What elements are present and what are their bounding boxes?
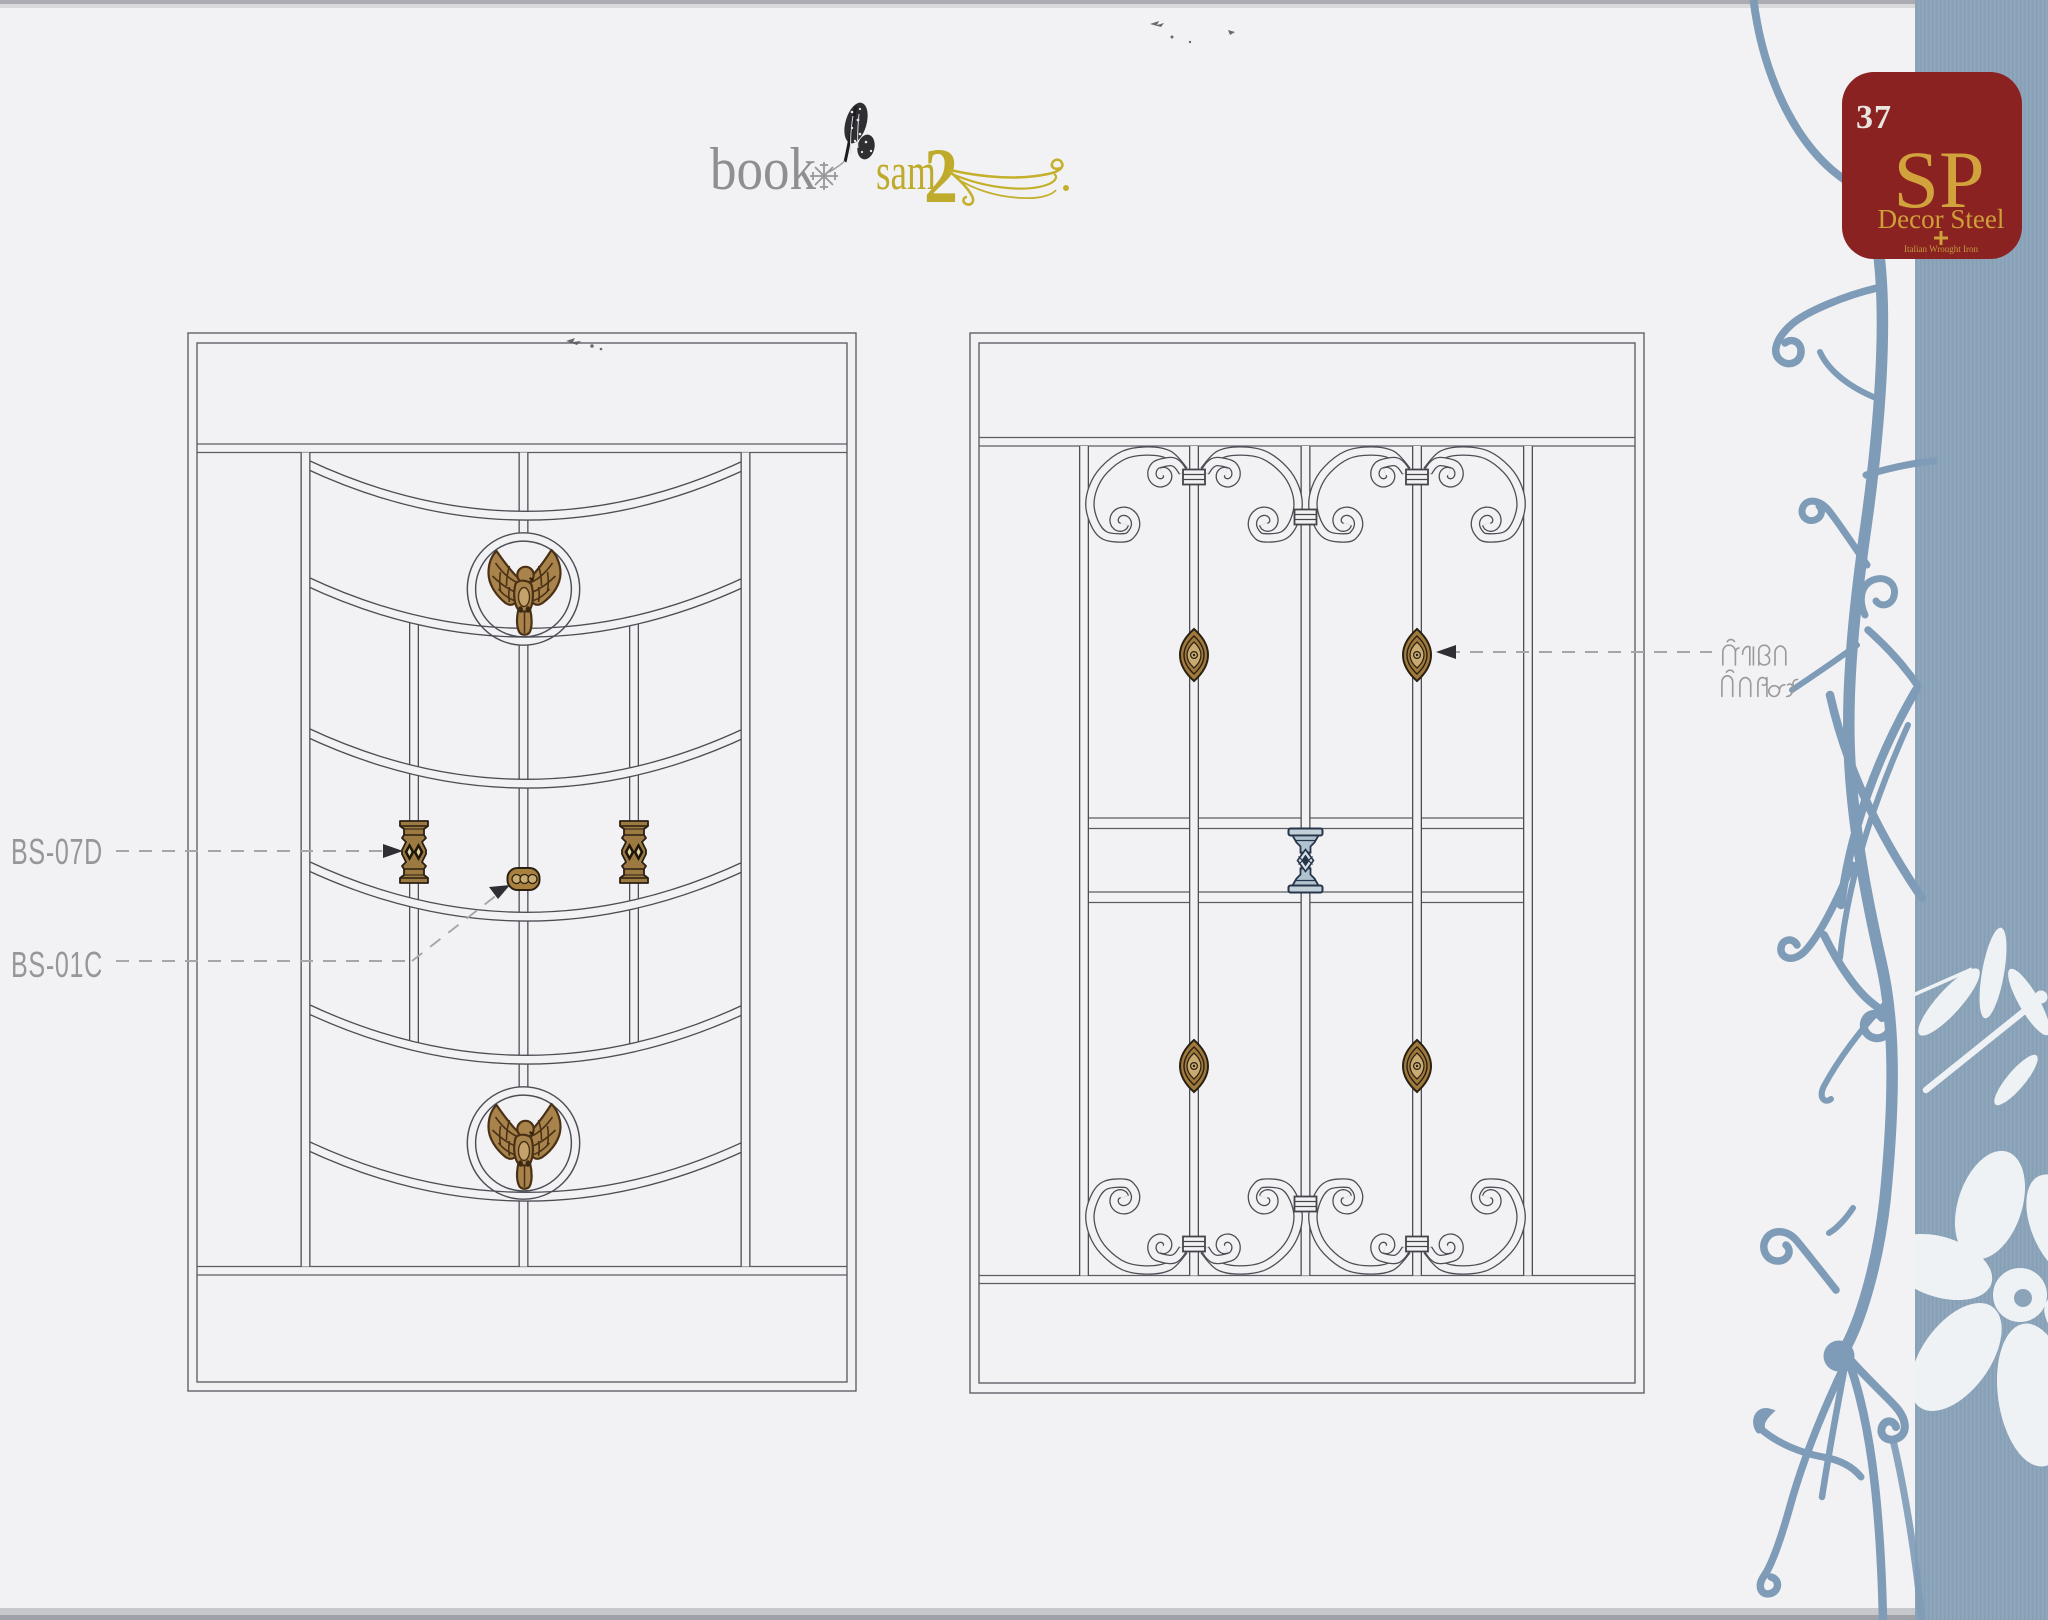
svg-text:BS-07D: BS-07D <box>11 831 103 872</box>
svg-text:BS-01C: BS-01C <box>11 944 103 985</box>
svg-text:book: book <box>710 136 816 202</box>
svg-text:Italian Wrought Iron: Italian Wrought Iron <box>1904 244 1978 254</box>
svg-text:Decor Steel: Decor Steel <box>1878 204 2005 234</box>
svg-text:37: 37 <box>1856 99 1892 136</box>
